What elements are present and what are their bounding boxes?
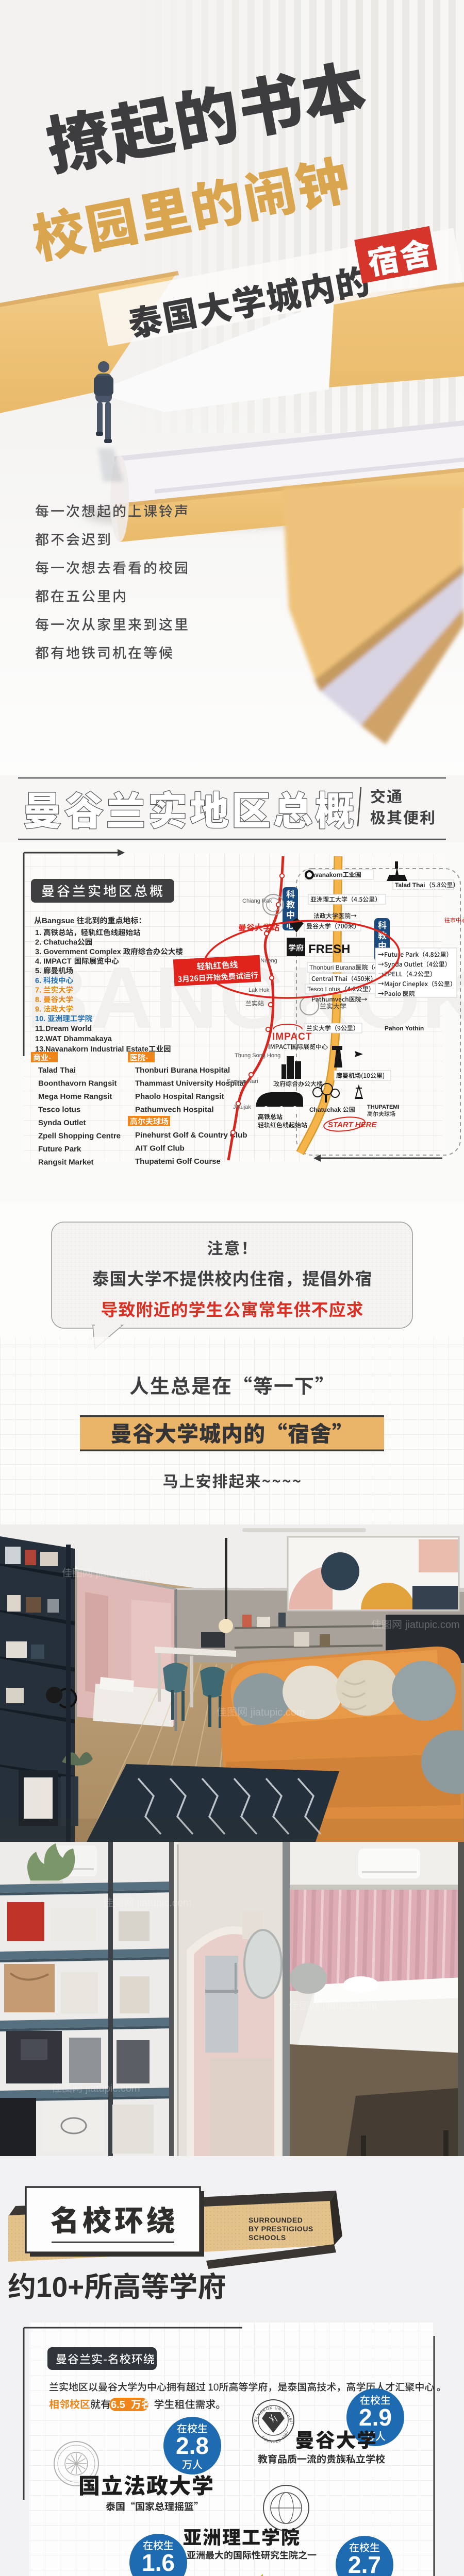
svg-text:10: 10 xyxy=(208,2382,219,2393)
svg-text:jiatupic.com: jiatupic.com xyxy=(405,1619,460,1631)
svg-text:11.: 11. xyxy=(35,1025,45,1033)
svg-text:Mega Home Rangsit: Mega Home Rangsit xyxy=(38,1092,112,1101)
svg-text:AIT Golf Club: AIT Golf Club xyxy=(135,1144,185,1153)
svg-text:Government Complex: Government Complex xyxy=(43,948,121,956)
svg-text:1.: 1. xyxy=(35,929,41,937)
svg-text:Phaolo Hospital Rangsit: Phaolo Hospital Rangsit xyxy=(135,1092,224,1101)
svg-text:Thupatemi Golf Course: Thupatemi Golf Course xyxy=(135,1157,221,1166)
svg-text:9.: 9. xyxy=(35,1006,41,1014)
svg-text:jiatupic.com: jiatupic.com xyxy=(137,1897,192,1909)
svg-text:4.: 4. xyxy=(35,958,41,966)
svg-text:Bangsue: Bangsue xyxy=(42,917,74,925)
svg-text:6.: 6. xyxy=(35,977,41,985)
svg-text:Thung Song Hong: Thung Song Hong xyxy=(235,1053,280,1059)
svg-text:IMPACT: IMPACT xyxy=(272,1031,312,1042)
svg-text:1.6: 1.6 xyxy=(142,2549,175,2576)
svg-text:Lak Hok: Lak Hok xyxy=(248,987,270,993)
svg-text:Boonthavorn Rangsit: Boonthavorn Rangsit xyxy=(38,1079,117,1088)
svg-text:jiatupic.com: jiatupic.com xyxy=(322,2001,377,2012)
svg-text:Rangsit Market: Rangsit Market xyxy=(38,1158,94,1167)
svg-text:12.: 12. xyxy=(35,1035,45,1043)
svg-text:WAT Dhammakaya: WAT Dhammakaya xyxy=(45,1035,112,1043)
svg-text:SCHOOLS: SCHOOLS xyxy=(248,2233,286,2242)
svg-text:Talad Thai: Talad Thai xyxy=(38,1066,76,1075)
svg-text:5.: 5. xyxy=(35,967,41,975)
svg-text:Pahon Yothin: Pahon Yothin xyxy=(385,1025,424,1032)
svg-text:START HERE: START HERE xyxy=(328,1121,377,1129)
svg-text:Tesco Lotus: Tesco Lotus xyxy=(307,986,340,993)
svg-text:10.: 10. xyxy=(35,1015,45,1023)
svg-text:Thonburi Burana: Thonburi Burana xyxy=(309,964,356,971)
svg-text:BY PRESTIGIOUS: BY PRESTIGIOUS xyxy=(248,2225,313,2233)
svg-text:7.: 7. xyxy=(35,987,41,995)
svg-text:THUPATEMI: THUPATEMI xyxy=(367,1104,400,1110)
svg-text:SURROUNDED: SURROUNDED xyxy=(248,2216,303,2224)
svg-text:10+: 10+ xyxy=(36,2271,84,2303)
svg-text:Pathumvech Hospital: Pathumvech Hospital xyxy=(135,1106,214,1114)
svg-text:Jatujak: Jatujak xyxy=(233,1104,251,1110)
svg-text:Chatuchak: Chatuchak xyxy=(309,1106,341,1113)
svg-text:jiatupic.com: jiatupic.com xyxy=(85,2083,140,2094)
svg-text:Talad Thai: Talad Thai xyxy=(395,882,425,889)
svg-text:Future Park: Future Park xyxy=(38,1145,81,1154)
svg-text:2.: 2. xyxy=(35,939,41,947)
svg-text:jiatupic.com: jiatupic.com xyxy=(250,1707,305,1718)
svg-text:Synda Outlet: Synda Outlet xyxy=(38,1118,86,1127)
svg-text:Tesco lotus: Tesco lotus xyxy=(38,1106,80,1114)
svg-text:Zpell Shopping Centre: Zpell Shopping Centre xyxy=(38,1132,121,1141)
svg-text:6.5: 6.5 xyxy=(111,2399,125,2411)
svg-text:3.: 3. xyxy=(35,948,41,956)
svg-text:2.8: 2.8 xyxy=(176,2432,209,2459)
svg-text:8.: 8. xyxy=(35,996,41,1004)
svg-text:Thonburi Burana Hospital: Thonburi Burana Hospital xyxy=(135,1066,230,1075)
svg-text:Samian Nari: Samian Nari xyxy=(227,1078,258,1084)
svg-text:Chatucha: Chatucha xyxy=(43,939,78,947)
svg-text:2.9: 2.9 xyxy=(359,2404,392,2431)
svg-text:Dream World: Dream World xyxy=(45,1025,92,1033)
svg-text:jiatupic.com: jiatupic.com xyxy=(95,1568,151,1579)
svg-text:IMPACT: IMPACT xyxy=(43,958,72,966)
svg-text:FRESH: FRESH xyxy=(308,942,350,956)
svg-text:2.7: 2.7 xyxy=(348,2551,381,2576)
